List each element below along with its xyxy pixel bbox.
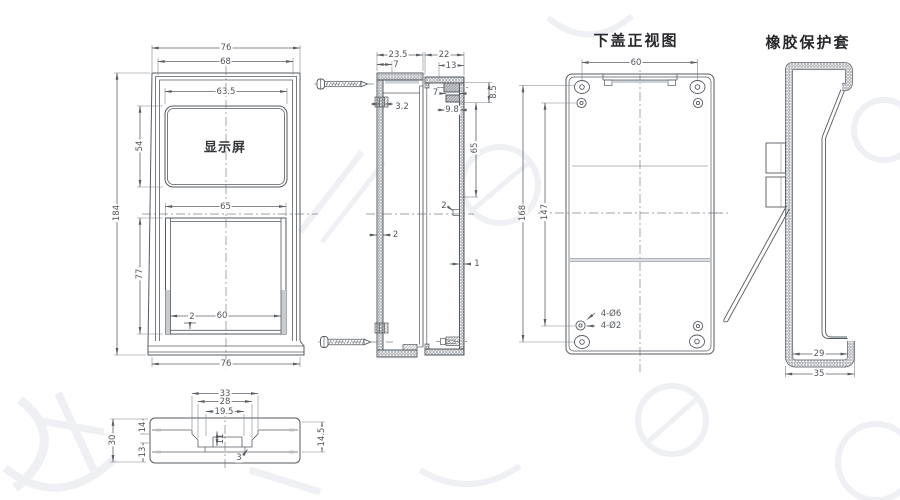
screen-label: 显示屏 <box>204 137 246 156</box>
dim-front-screen-height: 54 <box>136 140 145 153</box>
dim-front-opening-height: 77 <box>136 268 145 281</box>
lower-cover-dimensions <box>519 59 698 342</box>
dim-front-screen-width: 63.5 <box>216 87 237 96</box>
dim-bottom-right-span: 14.5 <box>318 427 327 448</box>
dim-lower-boss-length: 7 <box>432 88 439 97</box>
section-lower-cover <box>425 77 464 355</box>
dim-cover-hole-span-inner: 147 <box>541 202 550 220</box>
front-view-dimensions <box>114 45 300 367</box>
dim-lower-top-inset: 13 <box>445 61 458 70</box>
dim-front-width-top: 76 <box>220 44 233 53</box>
dim-upper-boss-hole: 3.2 <box>394 103 410 112</box>
dim-lower-boss-span: 65 <box>471 142 480 155</box>
dim-sleeve-outer-width: 35 <box>813 370 826 379</box>
note-cover-pilot: 4-Ø2 <box>600 322 623 331</box>
dim-lower-depth: 22 <box>438 51 451 60</box>
dim-front-opening-width-top: 65 <box>219 202 232 211</box>
dim-lower-wall: 1 <box>473 260 480 269</box>
dim-upper-depth: 23.5 <box>388 51 409 60</box>
dim-bottom-height: 30 <box>109 434 118 447</box>
dim-bottom-notch-inner: 19.5 <box>214 407 235 416</box>
drawing-canvas <box>0 0 900 500</box>
note-cover-counterbore: 4-Ø6 <box>600 309 623 318</box>
dim-lower-boss-inset: 9.8 <box>444 106 460 115</box>
engineering-drawing-sheet: 下盖正视图 橡胶保护套 显示屏 76 68 63.5 54 184 65 77 … <box>0 0 900 500</box>
dim-cover-hole-spacing-x: 60 <box>630 58 643 67</box>
dim-front-width-bottom: 76 <box>220 360 233 369</box>
dim-sleeve-inner-width: 29 <box>813 350 826 359</box>
dim-upper-wall: 2 <box>392 231 399 240</box>
lower-cover-title: 下盖正视图 <box>593 30 678 51</box>
dim-cover-hole-span-outer: 168 <box>519 203 528 221</box>
dim-front-width-inner: 68 <box>219 57 232 66</box>
sleeve-view <box>724 66 851 364</box>
dim-front-rail: 2 <box>188 313 195 322</box>
dim-bottom-notch-mid: 28 <box>219 397 232 406</box>
dim-lower-boss-band: 8.5 <box>489 84 498 100</box>
screw-top <box>317 79 368 89</box>
dim-upper-top-wall: 7 <box>392 60 399 69</box>
screw-bottom <box>321 337 371 348</box>
section-upper-cover <box>375 73 423 357</box>
dim-bottom-lower: 13 <box>139 446 148 459</box>
sleeve-title: 橡胶保护套 <box>765 32 850 53</box>
dim-front-height-total: 184 <box>113 204 122 222</box>
dim-lower-button-step: 2 <box>440 201 447 210</box>
dim-bottom-step: 3 <box>235 454 242 463</box>
dim-bottom-notch-depth: 11 <box>217 432 226 445</box>
dim-front-opening-width-bottom: 60 <box>216 312 229 321</box>
dim-bottom-upper: 14 <box>139 420 148 433</box>
